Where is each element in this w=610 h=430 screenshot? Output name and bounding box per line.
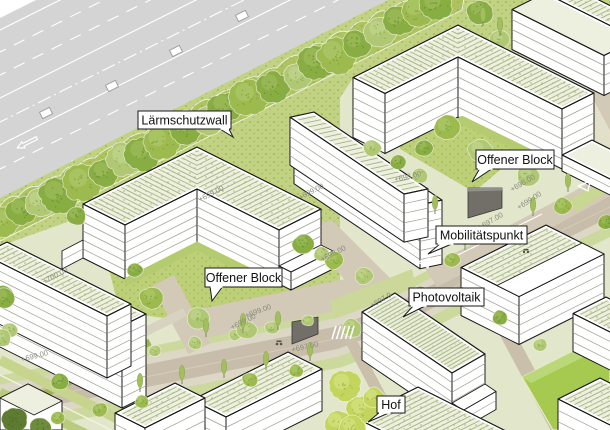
svg-text:Offener Block: Offener Block	[206, 271, 282, 285]
svg-text:Photovoltaik: Photovoltaik	[412, 291, 481, 305]
svg-text:Mobilitätspunkt: Mobilitätspunkt	[440, 229, 524, 243]
svg-text:Lärmschutzwall: Lärmschutzwall	[141, 114, 227, 128]
svg-text:Offener Block: Offener Block	[477, 153, 553, 167]
svg-text:Hof: Hof	[381, 398, 401, 412]
